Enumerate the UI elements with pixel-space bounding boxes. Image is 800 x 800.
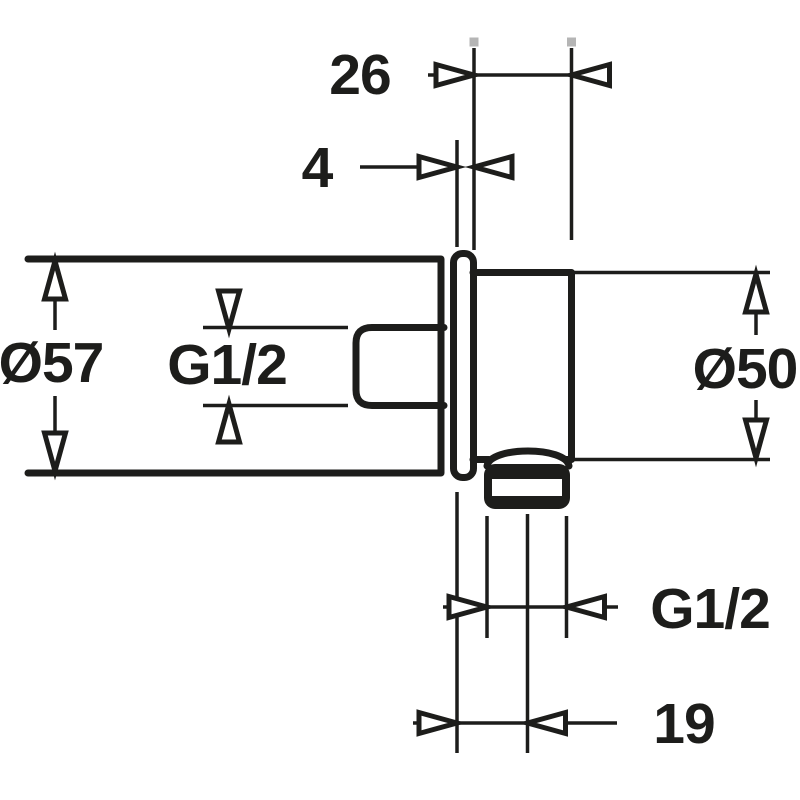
inlet-nipple	[356, 328, 444, 406]
dim-19-arrow-right	[528, 713, 566, 734]
handle-square-left	[470, 38, 479, 47]
dimension-body-diameter: Ø50	[693, 274, 798, 458]
dim-label-57: Ø57	[0, 331, 103, 395]
dim-label-g12-outlet: G1/2	[650, 577, 770, 641]
dim-label-g12-inlet: G1/2	[167, 333, 287, 397]
fixture-outline	[28, 254, 572, 510]
dim-label-50: Ø50	[693, 337, 798, 401]
outlet-nut-groove	[492, 479, 562, 496]
dim-26-arrow-right	[572, 65, 610, 86]
dimension-flange-diameter: Ø57	[0, 261, 103, 471]
technical-drawing: 26 4 Ø57 G1/2 Ø50	[0, 0, 800, 800]
extension-lines	[203, 38, 770, 754]
dim-19-arrow-left	[419, 713, 457, 734]
dim-label-19: 19	[653, 692, 714, 756]
dim-g12-inlet-arrow-up	[219, 404, 240, 442]
handle-square-right	[567, 38, 576, 47]
dim-label-26: 26	[329, 43, 390, 107]
dimension-inlet-thread: G1/2	[167, 291, 287, 442]
dim-57-arrow-down	[45, 433, 66, 471]
dim-g12-inlet-arrow-down	[219, 291, 240, 329]
dimension-outlet-thread: G1/2	[443, 577, 770, 641]
dim-4-arrow-right	[474, 157, 512, 178]
dimension-plate-thickness: 4	[302, 136, 512, 200]
body-cylinder	[473, 273, 572, 460]
dim-label-4: 4	[302, 136, 334, 200]
dim-26-arrow-left	[436, 65, 474, 86]
dim-50-arrow-down	[746, 420, 767, 458]
dim-50-arrow-up	[746, 274, 767, 312]
technical-drawing-page: 26 4 Ø57 G1/2 Ø50	[0, 0, 800, 800]
outlet-nut	[484, 464, 570, 509]
escutcheon-disc	[454, 254, 474, 478]
dim-57-arrow-up	[45, 261, 66, 299]
dim-g12-outlet-arrow-left	[449, 597, 487, 618]
outlet-dome	[487, 451, 569, 466]
dim-4-arrow-left	[419, 157, 457, 178]
dimension-projection-depth: 26	[329, 43, 609, 107]
dim-g12-outlet-arrow-right	[567, 597, 605, 618]
